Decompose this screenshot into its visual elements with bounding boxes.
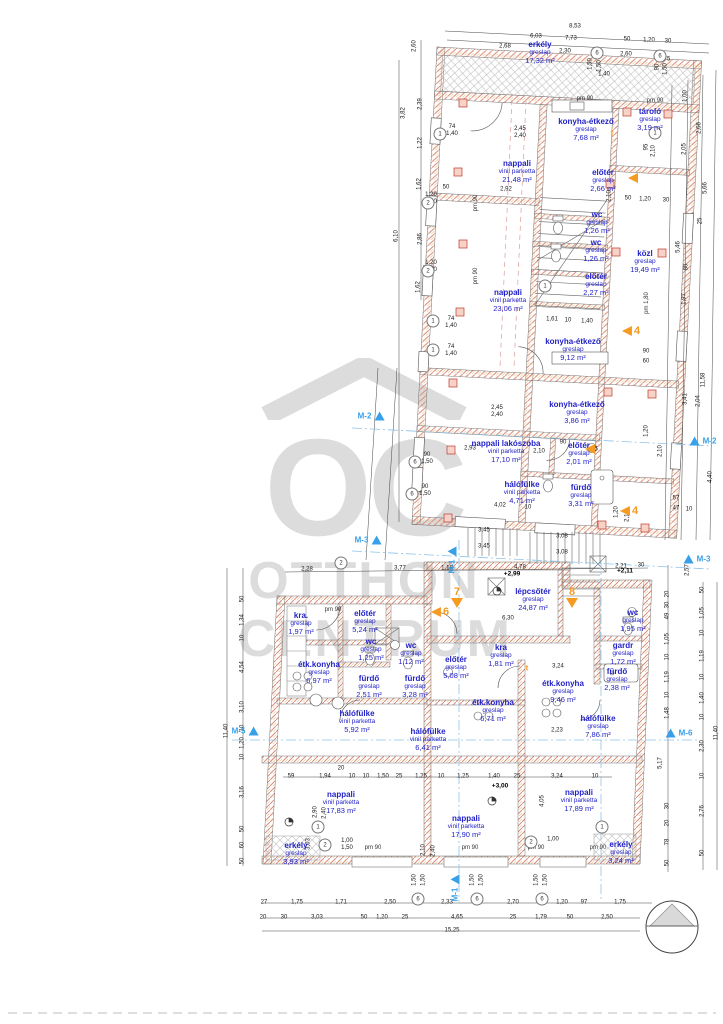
lower-windows [352, 857, 586, 867]
lower-building [262, 100, 652, 867]
fixtures [293, 100, 638, 720]
north-compass-icon [646, 901, 698, 953]
survey-crosses [444, 99, 672, 532]
plan-drawing [0, 0, 723, 1024]
closet [287, 606, 306, 696]
upper-doors [454, 101, 587, 462]
upper-building [410, 47, 702, 540]
floor-plan-page: OC OTTHON CENTRUM [0, 0, 723, 1024]
demolition-dashes [500, 100, 526, 368]
geo-points [285, 587, 501, 826]
